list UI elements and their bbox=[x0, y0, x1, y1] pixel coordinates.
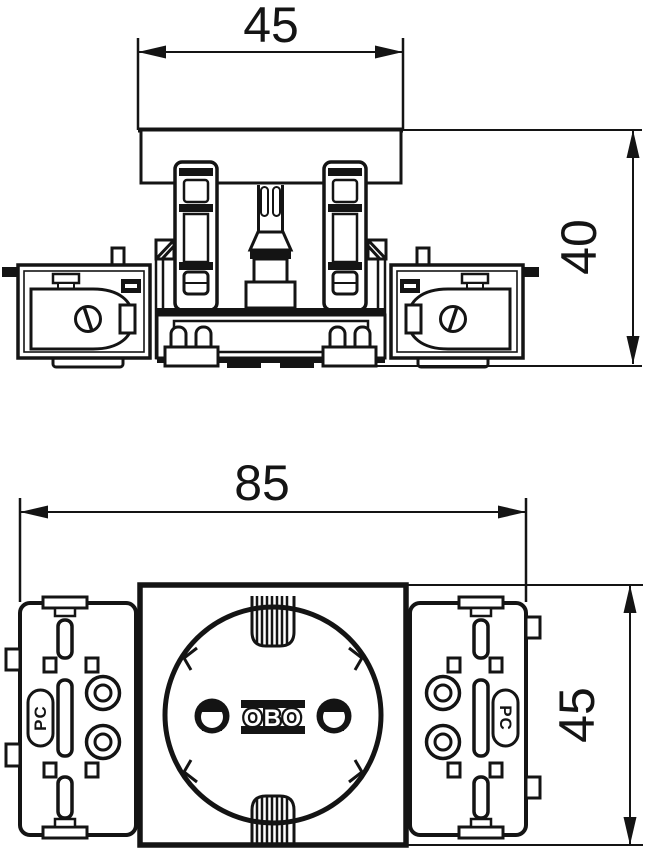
technical-drawing: 45 bbox=[0, 0, 646, 853]
socket-front: OBO bbox=[140, 585, 406, 846]
left-module-label: PC bbox=[31, 705, 50, 731]
snap-tab bbox=[6, 744, 20, 766]
latch-post bbox=[417, 248, 429, 265]
dim-label-height-bottom: 45 bbox=[549, 687, 605, 743]
drawing-canvas: 45 bbox=[0, 0, 646, 853]
mounting-claw-left bbox=[175, 162, 217, 310]
base-pad bbox=[280, 361, 314, 368]
dim-label-width-bottom: 85 bbox=[234, 455, 290, 511]
right-module-label: PC bbox=[496, 705, 515, 731]
snap-tab bbox=[6, 649, 20, 670]
base-pad bbox=[227, 361, 261, 368]
mounting-claw-right bbox=[324, 162, 366, 310]
dim-label-height-top: 40 bbox=[551, 219, 607, 275]
snap-tab bbox=[526, 617, 540, 638]
brand-logo: OBO bbox=[241, 700, 305, 734]
section-mark bbox=[368, 240, 386, 259]
contact-hole-right bbox=[317, 699, 352, 734]
brand-logo-text: OBO bbox=[243, 705, 302, 732]
latch-post bbox=[112, 248, 124, 265]
coupler-module-left-side bbox=[2, 265, 150, 367]
dim-label-width-top: 45 bbox=[243, 0, 299, 53]
snap-tab bbox=[526, 777, 540, 798]
coupler-module-right-side bbox=[391, 265, 539, 367]
contact-hole-left bbox=[195, 699, 230, 734]
section-mark bbox=[156, 240, 174, 259]
